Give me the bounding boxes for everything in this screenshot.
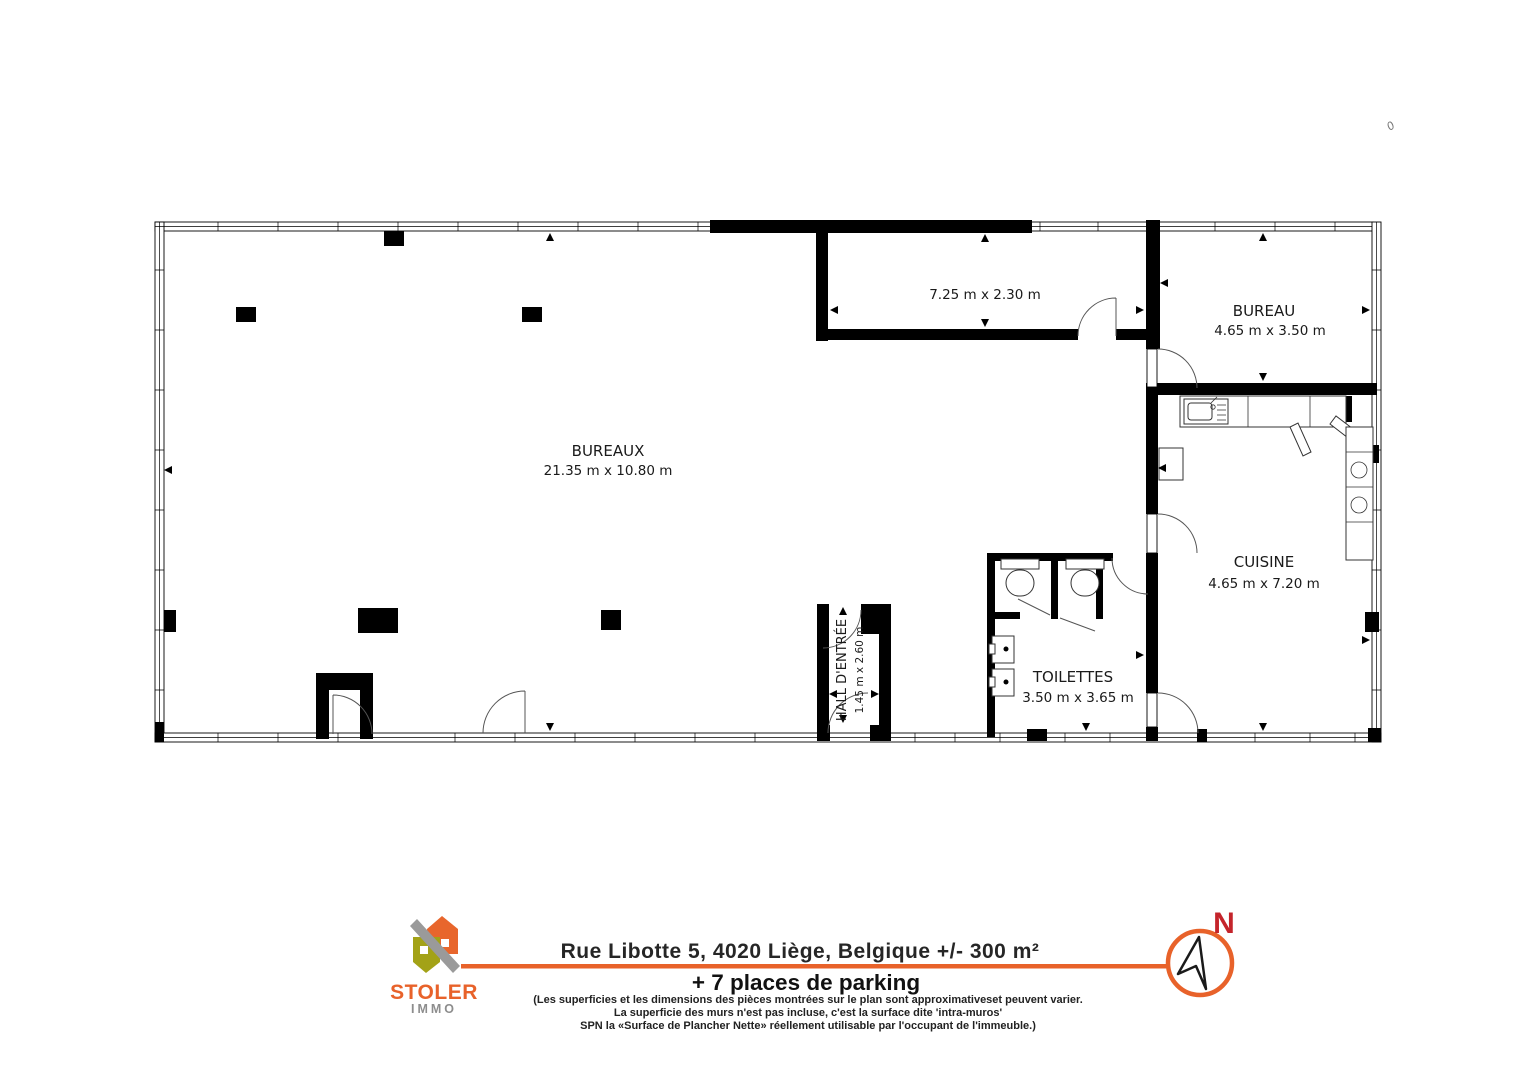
bureau-dims: 4.65 m x 3.50 m xyxy=(1214,323,1326,339)
exterior-window-walls xyxy=(155,222,1381,742)
compass-north-label: N xyxy=(1213,907,1235,940)
north-compass: N xyxy=(1168,907,1235,995)
toilet-tank xyxy=(1066,559,1104,569)
radiator xyxy=(1159,448,1183,480)
stray-mark: 0 xyxy=(1384,119,1397,134)
dimension-arrows xyxy=(164,233,1370,731)
brand-logo xyxy=(410,916,460,973)
bureaux-exit-door-arc xyxy=(483,691,525,733)
kitchen-fixtures xyxy=(1159,396,1373,560)
bureaux-dims: 21.35 m x 10.80 m xyxy=(544,463,673,479)
north-arrow-icon xyxy=(1178,937,1206,989)
floor-plan: BUREAUX 21.35 m x 10.80 m 7.25 m x 2.30 … xyxy=(0,0,1528,1080)
disclaimer-line: La superficie des murs n'est pas incluse… xyxy=(614,1007,1003,1019)
stall-door-2 xyxy=(1060,618,1095,631)
hall-label: HALL D'ENTRÉE xyxy=(834,619,850,721)
basin-tap xyxy=(989,644,995,654)
hall-dims: 1.45 m x 2.60 m xyxy=(854,627,866,714)
window-ticks xyxy=(155,222,1381,742)
bureaux-label: BUREAUX xyxy=(572,442,645,460)
kitchen-lower-door-arc xyxy=(1158,693,1198,733)
floorplan-page: BUREAUX 21.35 m x 10.80 m 7.25 m x 2.30 … xyxy=(0,0,1528,1080)
disclaimer-line: (Les superficies et les dimensions des p… xyxy=(533,994,1083,1006)
bureau-label: BUREAU xyxy=(1233,302,1295,320)
toilet-tank xyxy=(1001,559,1039,569)
brand-sub: IMMO xyxy=(411,1002,457,1016)
parking-note: + 7 places de parking xyxy=(692,970,920,995)
toilet-bowl xyxy=(1006,570,1034,596)
property-address: Rue Libotte 5, 4020 Liège, Belgique +/- … xyxy=(561,940,1040,963)
disclaimer-line: SPN la «Surface de Plancher Nette» réell… xyxy=(580,1020,1036,1032)
basin-tap xyxy=(989,677,995,687)
cuisine-label: CUISINE xyxy=(1234,553,1295,571)
toilettes-dims: 3.50 m x 3.65 m xyxy=(1022,690,1134,706)
storage-door-arc xyxy=(1078,298,1116,336)
kitchen-side-counter xyxy=(1346,427,1373,560)
cuisine-dims: 4.65 m x 7.20 m xyxy=(1208,576,1320,592)
footer-graphics: STOLER IMMO Rue Libotte 5, 4020 Liège, B… xyxy=(390,907,1235,1032)
toilet-bowl xyxy=(1071,570,1099,596)
kitchen-upper-door-arc xyxy=(1158,514,1197,553)
structural-columns xyxy=(155,231,1381,742)
storage-dims: 7.25 m x 2.30 m xyxy=(929,287,1041,303)
brand-name: STOLER xyxy=(390,981,478,1004)
toilettes-label: TOILETTES xyxy=(1032,668,1113,686)
divider-line xyxy=(461,964,1168,969)
bureau-door-arc xyxy=(1158,349,1197,388)
toilettes-door-arc xyxy=(1112,558,1148,594)
cabinet-door xyxy=(1290,423,1311,456)
stall-door-1 xyxy=(1018,599,1050,615)
